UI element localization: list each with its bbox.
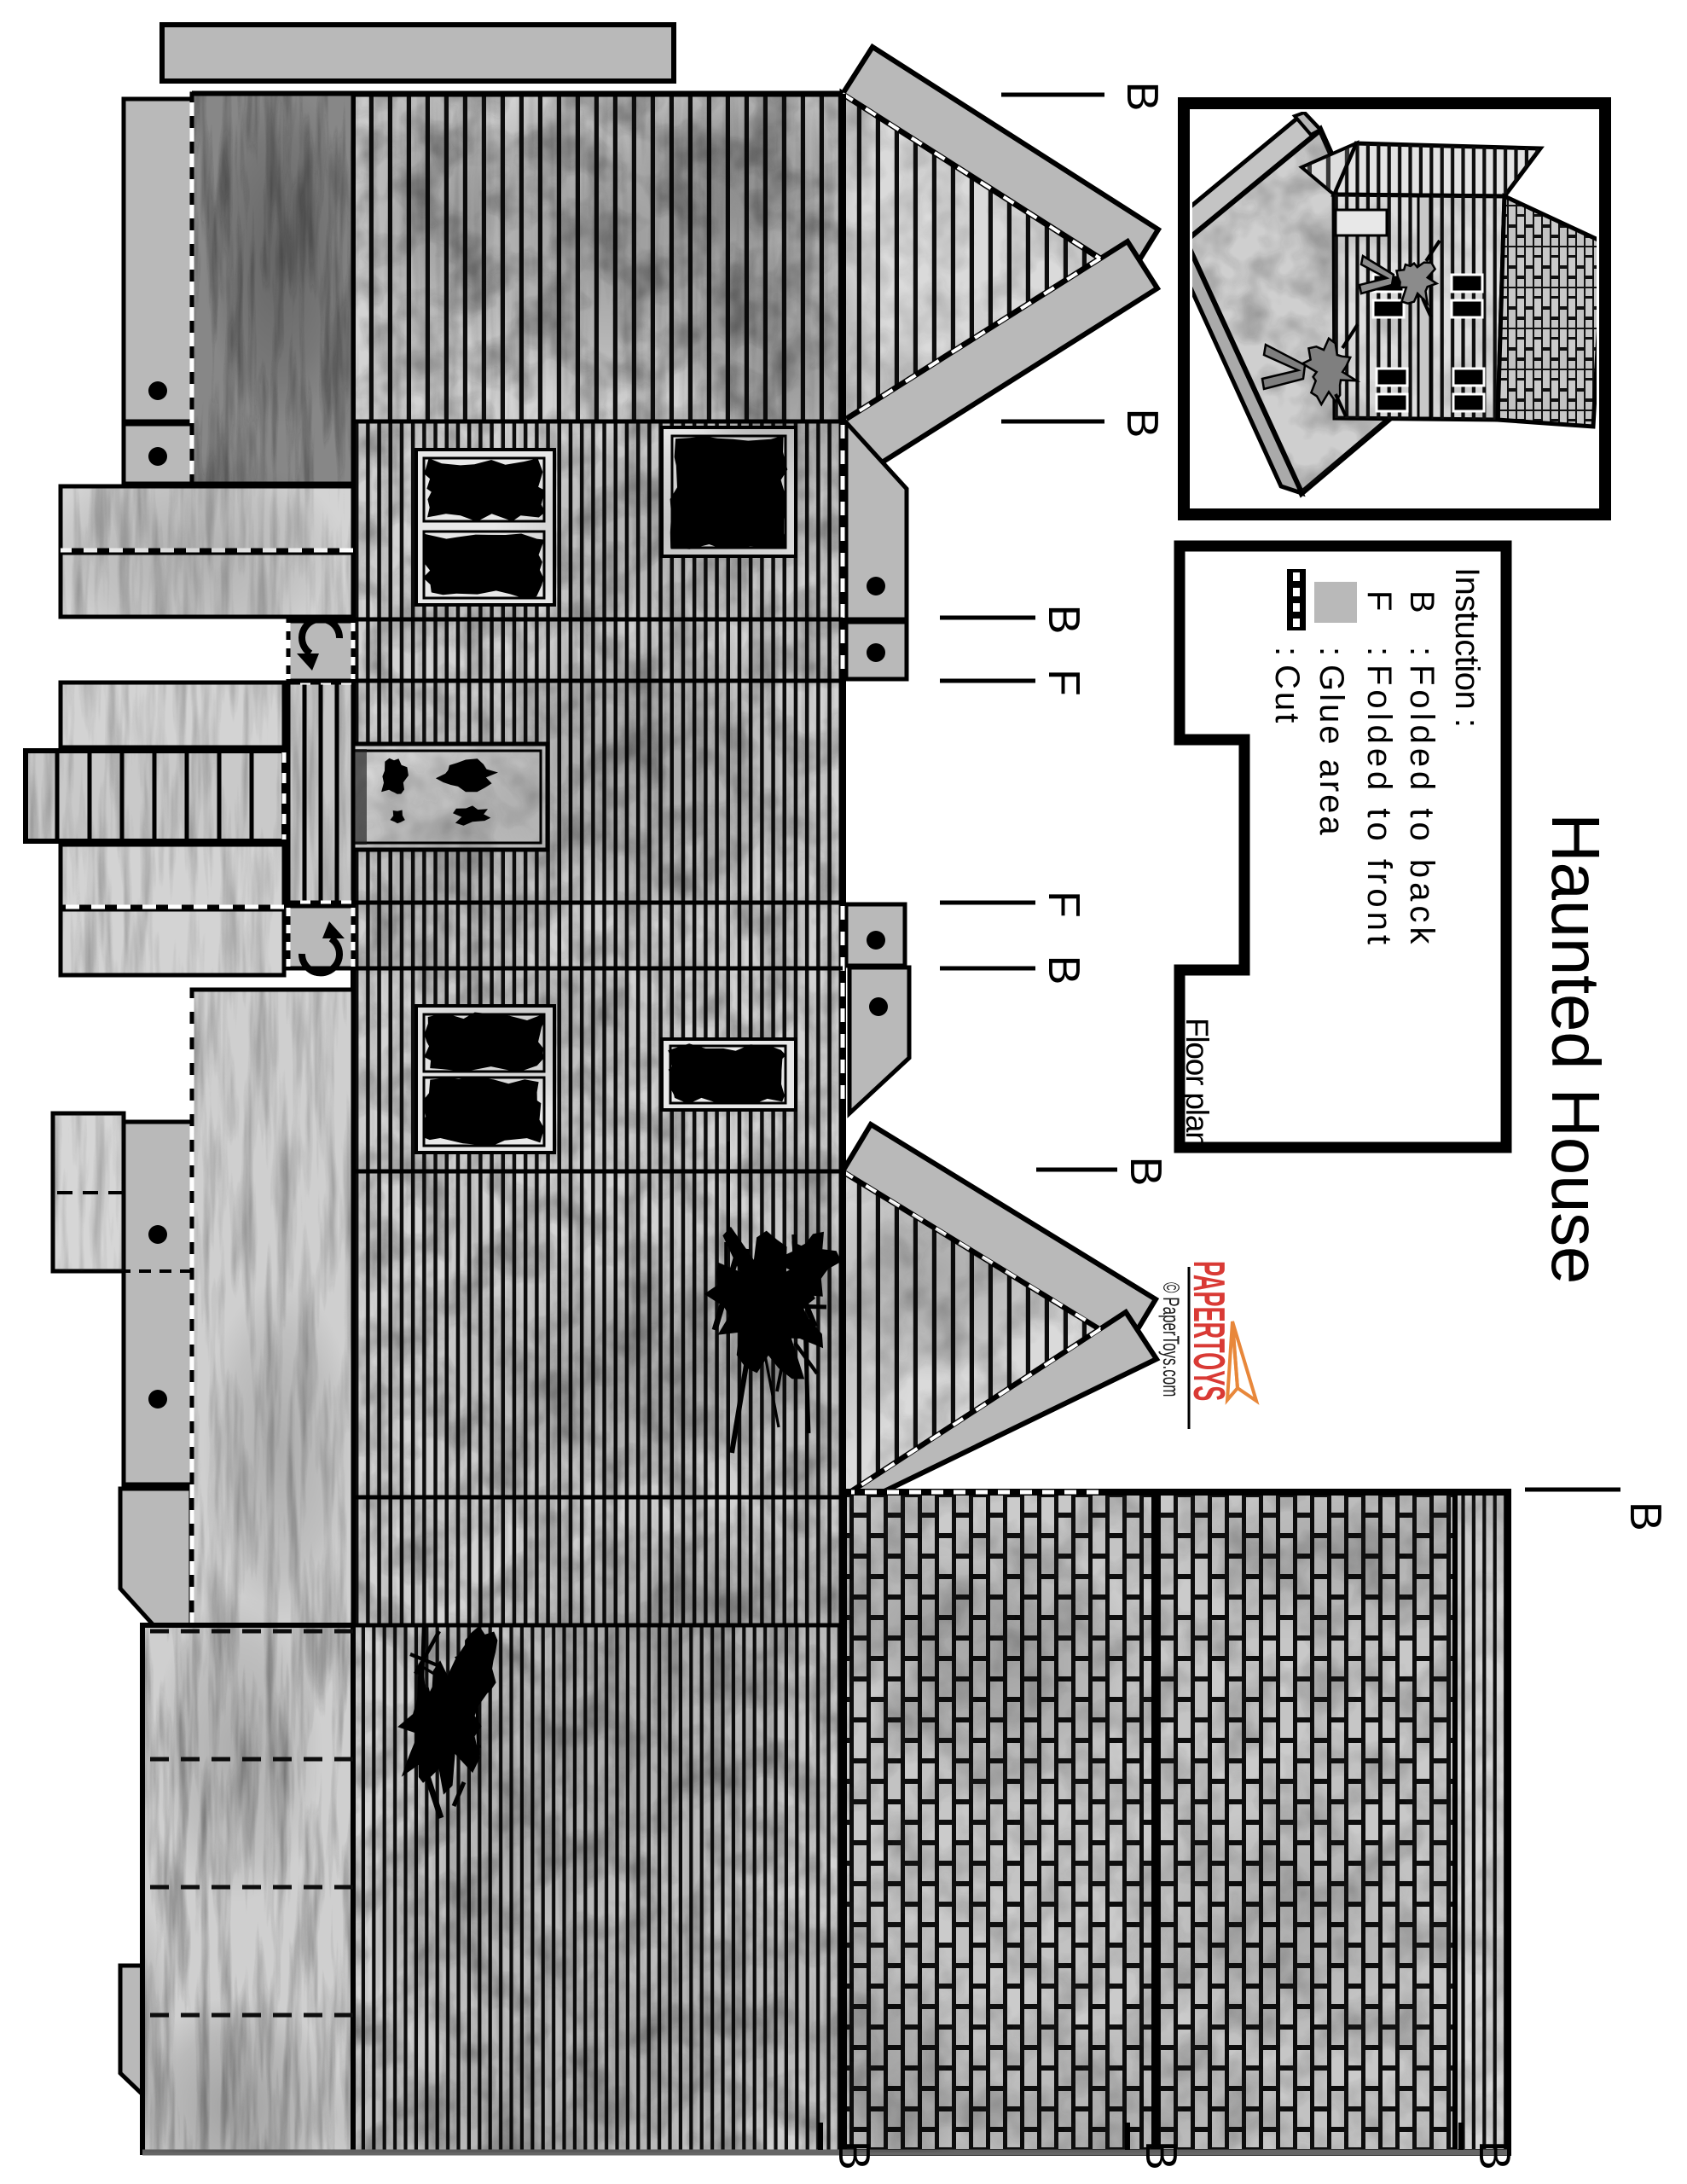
- svg-text:B: B: [1117, 82, 1167, 112]
- svg-text:Folded to back: Folded to back: [1403, 665, 1441, 948]
- svg-text:B: B: [1403, 590, 1441, 613]
- svg-text:B: B: [1136, 2140, 1186, 2170]
- svg-text:B: B: [1121, 1157, 1170, 1187]
- svg-text:Cut: Cut: [1268, 665, 1306, 725]
- svg-text:B: B: [1470, 2140, 1519, 2170]
- svg-text:F: F: [1039, 669, 1088, 696]
- svg-text:Instuction :: Instuction :: [1448, 567, 1486, 727]
- svg-text::: :: [1403, 647, 1441, 656]
- svg-text:Folded to front: Folded to front: [1360, 665, 1398, 949]
- svg-text:PAPERTOYS: PAPERTOYS: [1185, 1261, 1235, 1401]
- svg-text:© PaperToys.com: © PaperToys.com: [1158, 1282, 1184, 1397]
- svg-text::: :: [1360, 647, 1398, 656]
- svg-text:B: B: [1117, 409, 1167, 439]
- svg-text:Floor plan: Floor plan: [1180, 1018, 1215, 1148]
- svg-text:B: B: [1039, 955, 1088, 985]
- svg-text:F: F: [1039, 891, 1088, 918]
- svg-text:B: B: [1039, 605, 1088, 635]
- svg-text:B: B: [1620, 1501, 1670, 1531]
- svg-text:Haunted House: Haunted House: [1538, 813, 1614, 1284]
- svg-text:B: B: [829, 2140, 878, 2170]
- svg-text::: :: [1313, 647, 1350, 656]
- svg-text:Glue area: Glue area: [1313, 665, 1350, 838]
- svg-text::: :: [1268, 647, 1306, 656]
- svg-text:F: F: [1360, 590, 1398, 611]
